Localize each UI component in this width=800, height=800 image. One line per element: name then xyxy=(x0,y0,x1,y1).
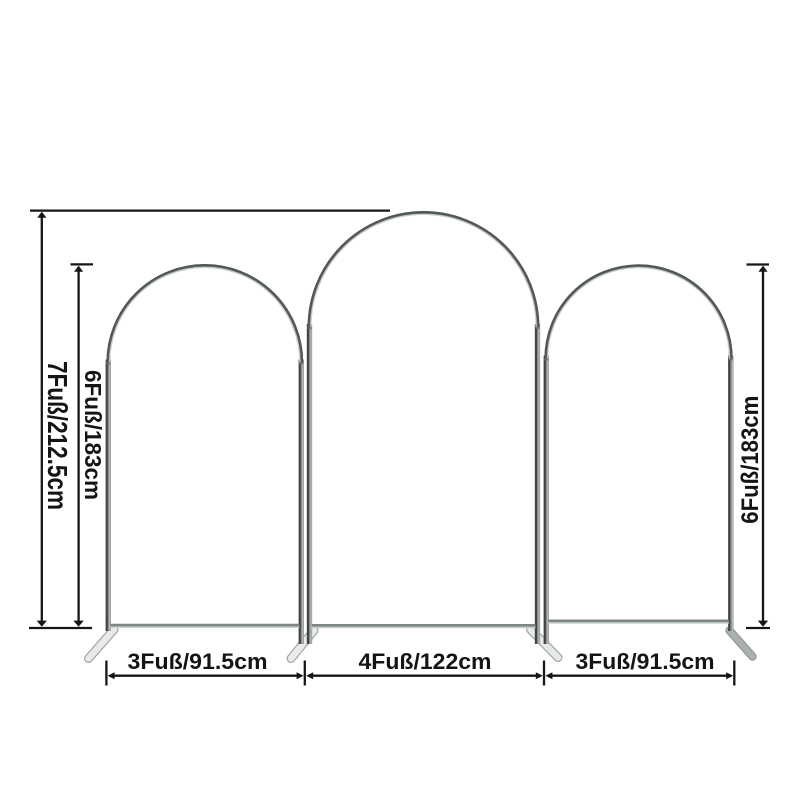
svg-text:4Fuß/122cm: 4Fuß/122cm xyxy=(359,649,492,674)
svg-text:6Fuß/183cm: 6Fuß/183cm xyxy=(737,396,764,524)
svg-text:3Fuß/91.5cm: 3Fuß/91.5cm xyxy=(576,649,715,674)
svg-text:7Fuß/212.5cm: 7Fuß/212.5cm xyxy=(42,361,73,510)
svg-text:3Fuß/91.5cm: 3Fuß/91.5cm xyxy=(128,649,268,674)
svg-text:6Fuß/183cm: 6Fuß/183cm xyxy=(80,370,106,500)
